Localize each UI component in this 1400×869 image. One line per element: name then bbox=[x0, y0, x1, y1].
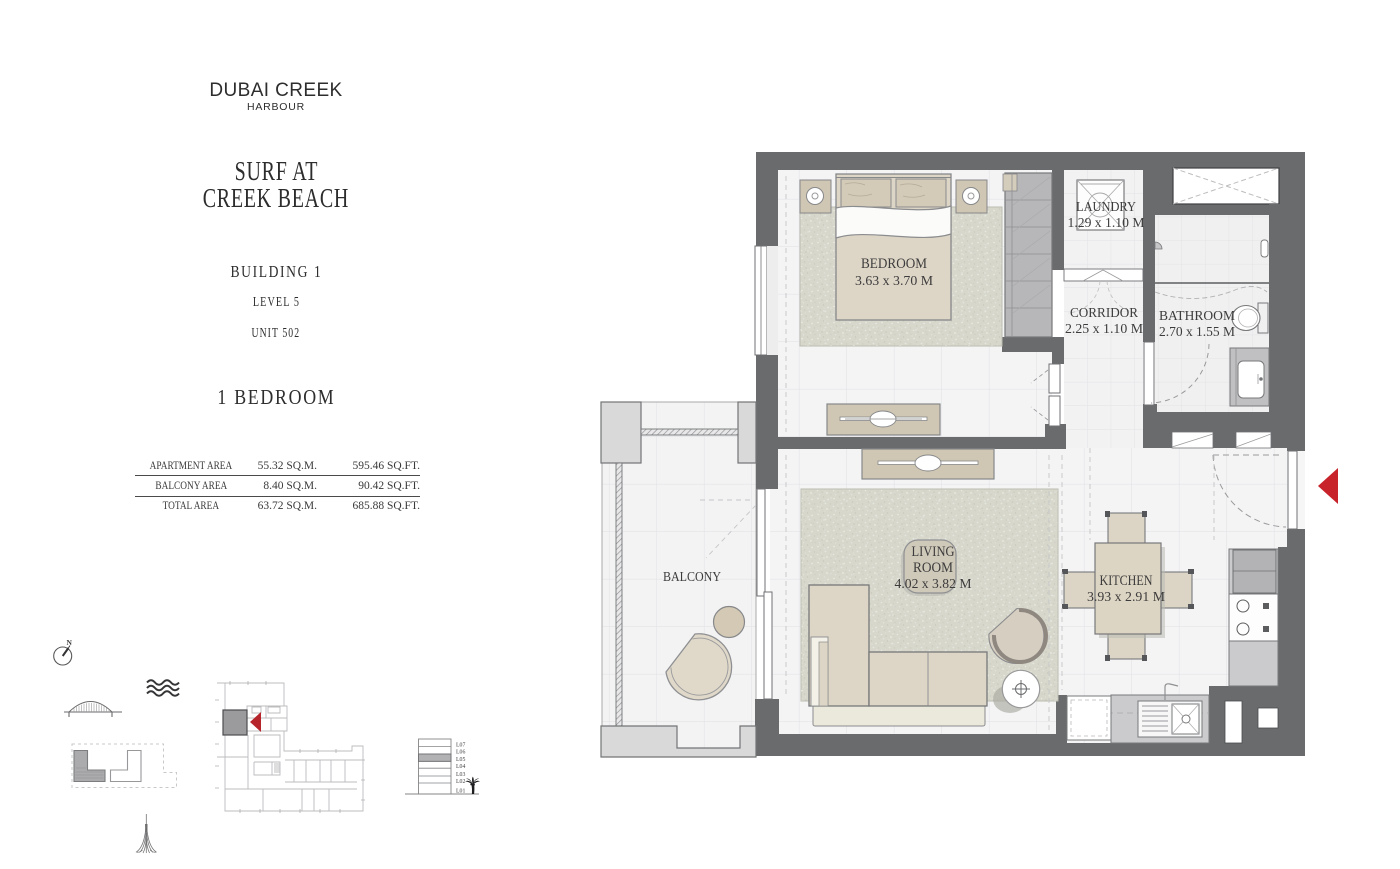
svg-text:ROOM: ROOM bbox=[913, 560, 953, 576]
svg-text:3.93 x 2.91 M: 3.93 x 2.91 M bbox=[1087, 590, 1166, 605]
svg-text:L06: L06 bbox=[456, 750, 465, 756]
svg-text:4.02 x 3.82 M: 4.02 x 3.82 M bbox=[895, 577, 973, 592]
svg-text:L01: L01 bbox=[456, 789, 465, 795]
svg-text:L03: L03 bbox=[456, 772, 465, 778]
svg-text:3.63 x 3.70 M: 3.63 x 3.70 M bbox=[855, 274, 934, 289]
svg-text:N: N bbox=[67, 638, 73, 647]
svg-text:BEDROOM: BEDROOM bbox=[861, 256, 927, 272]
svg-text:LAUNDRY: LAUNDRY bbox=[1076, 199, 1136, 214]
svg-text:CORRIDOR: CORRIDOR bbox=[1070, 305, 1138, 320]
svg-text:L02: L02 bbox=[456, 779, 465, 785]
svg-text:L07: L07 bbox=[456, 742, 465, 748]
svg-text:L05: L05 bbox=[456, 757, 465, 763]
svg-text:1.29 x 1.10 M: 1.29 x 1.10 M bbox=[1068, 215, 1145, 230]
svg-text:BATHROOM: BATHROOM bbox=[1159, 308, 1235, 323]
svg-text:2.25 x 1.10 M: 2.25 x 1.10 M bbox=[1065, 321, 1143, 336]
svg-text:KITCHEN: KITCHEN bbox=[1100, 573, 1153, 589]
svg-text:LIVING: LIVING bbox=[912, 544, 955, 560]
svg-text:2.70 x 1.55 M: 2.70 x 1.55 M bbox=[1159, 324, 1235, 339]
svg-text:BALCONY: BALCONY bbox=[663, 569, 721, 584]
svg-text:L04: L04 bbox=[456, 764, 465, 770]
